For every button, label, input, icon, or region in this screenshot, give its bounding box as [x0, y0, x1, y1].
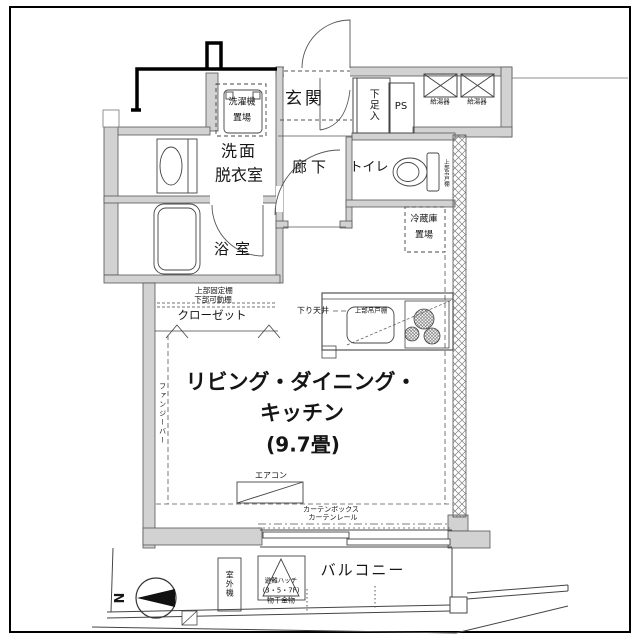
label-hatch-2: (3・5・7F)	[263, 587, 300, 594]
window-sliding	[260, 530, 452, 547]
label-toilet: トイレ	[349, 161, 388, 175]
label-hallway: 廊下	[292, 160, 330, 176]
label-side-strip: ファンジーバー	[158, 383, 165, 446]
label-fridge-1: 冷蔵庫	[410, 215, 437, 224]
label-closet-shelf-top: 上部固定棚	[195, 287, 233, 295]
label-aircon: エアコン	[255, 472, 287, 480]
label-curtain-rail: カーテンレール	[309, 514, 358, 521]
washbasin-icon	[157, 139, 197, 193]
water-heater-icon	[424, 74, 494, 97]
label-balcony: バルコニー	[321, 563, 406, 579]
label-ldk-1: リビング・ダイニング・	[186, 371, 417, 393]
label-dropped-ceiling: 下り天井	[297, 307, 329, 315]
label-water-heater-2: 給湯器	[467, 99, 487, 106]
label-washroom-1: 洗面	[221, 144, 257, 161]
bathtub-icon	[154, 204, 200, 274]
washing-machine-icon	[216, 84, 266, 136]
label-washer-1: 洗濯機	[228, 98, 255, 107]
label-bathroom: 浴室	[214, 242, 256, 258]
stove-burners-icon	[405, 301, 449, 348]
aircon-symbol	[237, 482, 303, 503]
meter-box	[103, 110, 119, 127]
entrance-door-arc	[278, 20, 352, 136]
label-laundry-hook: 物干金物	[267, 597, 295, 604]
label-closet: クローゼット	[178, 309, 247, 321]
toilet-icon	[393, 153, 439, 191]
label-outdoor-unit: 室外機	[225, 571, 233, 598]
label-water-heater-1: 給湯器	[430, 99, 450, 106]
label-ldk-size: (9.7畳)	[266, 435, 340, 456]
label-fridge-2: 置場	[415, 231, 433, 240]
label-hatch-1: 避難ハッチ	[265, 578, 298, 585]
label-kitchen-cabinet: 上部吊戸棚	[355, 308, 388, 315]
label-genkan: 玄関	[285, 91, 325, 109]
label-shoe-box: 下足入	[367, 89, 378, 122]
laundry-hook-marks	[307, 586, 375, 613]
label-ldk-2: キッチン	[260, 402, 344, 424]
curtain-lines	[258, 524, 450, 528]
compass-icon	[136, 578, 176, 618]
label-washer-2: 置場	[233, 114, 251, 123]
label-toilet-shelf: 上部吊戸棚	[442, 159, 448, 187]
party-wall-hatched	[453, 135, 466, 517]
label-compass-north: N	[114, 593, 128, 604]
label-pipe-space: PS	[395, 102, 407, 113]
label-washroom-2: 脱衣室	[215, 168, 263, 185]
floorplan-canvas: 玄関 下足入 PS 給湯器 給湯器 洗濯機 置場 洗面 脱衣室 廊下 トイレ 上…	[0, 0, 640, 640]
label-closet-shelf-bottom: 下部可動棚	[194, 296, 232, 304]
